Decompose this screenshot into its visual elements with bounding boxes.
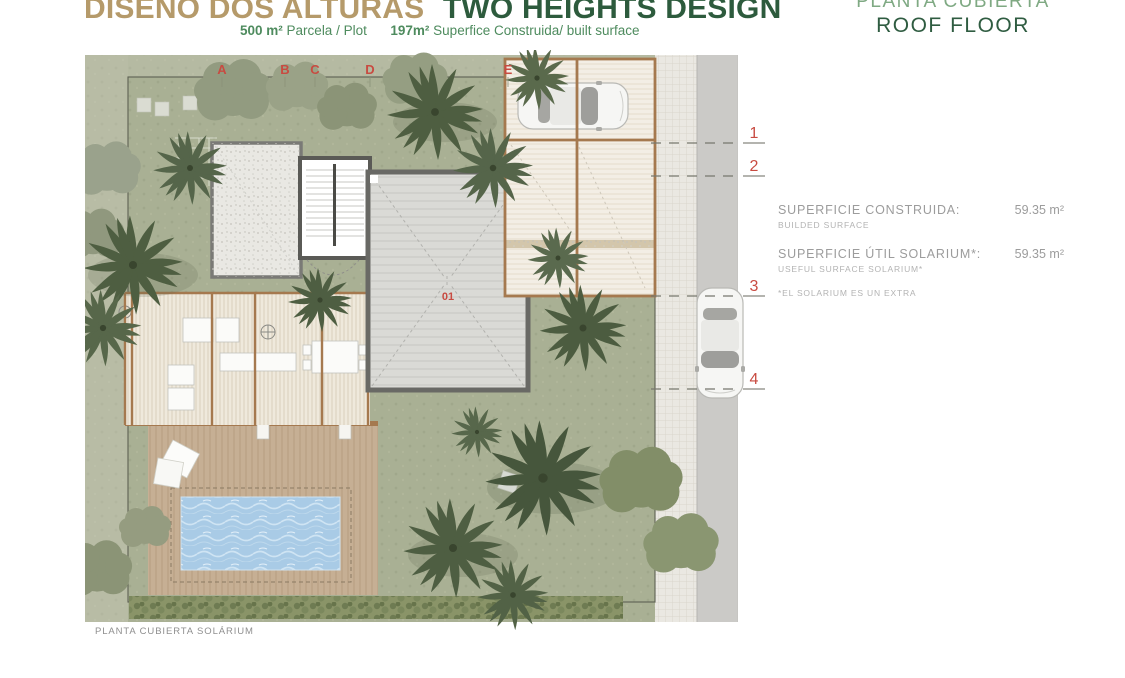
parked-car-street xyxy=(695,288,745,398)
surface-built-value: 59.35 m² xyxy=(1015,203,1064,217)
surface-solarium-value: 59.35 m² xyxy=(1015,247,1064,261)
plan-caption: PLANTA CUBIERTA SOLÁRIUM xyxy=(95,626,254,637)
surface-solarium-sublabel: USEFUL SURFACE SOLARIUM* xyxy=(778,264,1064,274)
surface-built-sublabel: BUILDED SURFACE xyxy=(778,220,1064,230)
stairwell xyxy=(300,158,370,258)
surface-solarium-label: SUPERFICIE ÚTIL SOLARIUM*: xyxy=(778,247,981,261)
surface-row-built: SUPERFICIE CONSTRUIDA: 59.35 m² xyxy=(778,203,1064,217)
swimming-pool xyxy=(181,497,340,570)
sheet-title: PLANTA CUBIERTA ROOF FLOOR xyxy=(828,0,1078,36)
grid-number-3: 3 xyxy=(750,278,759,295)
sheet-title-english: ROOF FLOOR xyxy=(828,15,1078,36)
unit-label: 01 xyxy=(442,291,454,303)
page-title-spanish: DISEÑO DOS ALTURAS xyxy=(84,0,424,25)
grid-number-4: 4 xyxy=(750,371,759,388)
hedge xyxy=(129,596,623,619)
grid-letter-c: C xyxy=(310,62,320,77)
built-area-label: Superfice Construida/ built surface xyxy=(433,23,639,38)
grid-number-2: 2 xyxy=(750,158,759,175)
sheet-title-spanish: PLANTA CUBIERTA xyxy=(828,0,1078,11)
grid-letter-e: E xyxy=(504,62,513,77)
site-plan: 1 2 3 4 A B C D E 01 xyxy=(85,50,765,630)
grid-letter-b: B xyxy=(280,62,289,77)
grid-number-1: 1 xyxy=(750,125,759,142)
plot-stats: 500 m² Parcela / Plot 197m² Superfice Co… xyxy=(240,23,640,38)
plot-area-label: Parcela / Plot xyxy=(287,23,367,38)
grid-letter-d: D xyxy=(365,62,374,77)
gravel-roof xyxy=(212,143,301,277)
grid-letter-a: A xyxy=(217,62,227,77)
pergola-terrace xyxy=(119,293,370,425)
page-title-english: TWO HEIGHTS DESIGN xyxy=(443,0,782,25)
surface-panel: SUPERFICIE CONSTRUIDA: 59.35 m² BUILDED … xyxy=(778,203,1064,298)
solarium-extra-note: *EL SOLARIUM ES UN EXTRA xyxy=(778,288,1064,298)
plot-area-value: 500 m² xyxy=(240,23,283,38)
built-area-value: 197m² xyxy=(390,23,429,38)
surface-row-solarium: SUPERFICIE ÚTIL SOLARIUM*: 59.35 m² xyxy=(778,247,1064,261)
surface-built-label: SUPERFICIE CONSTRUIDA: xyxy=(778,203,960,217)
